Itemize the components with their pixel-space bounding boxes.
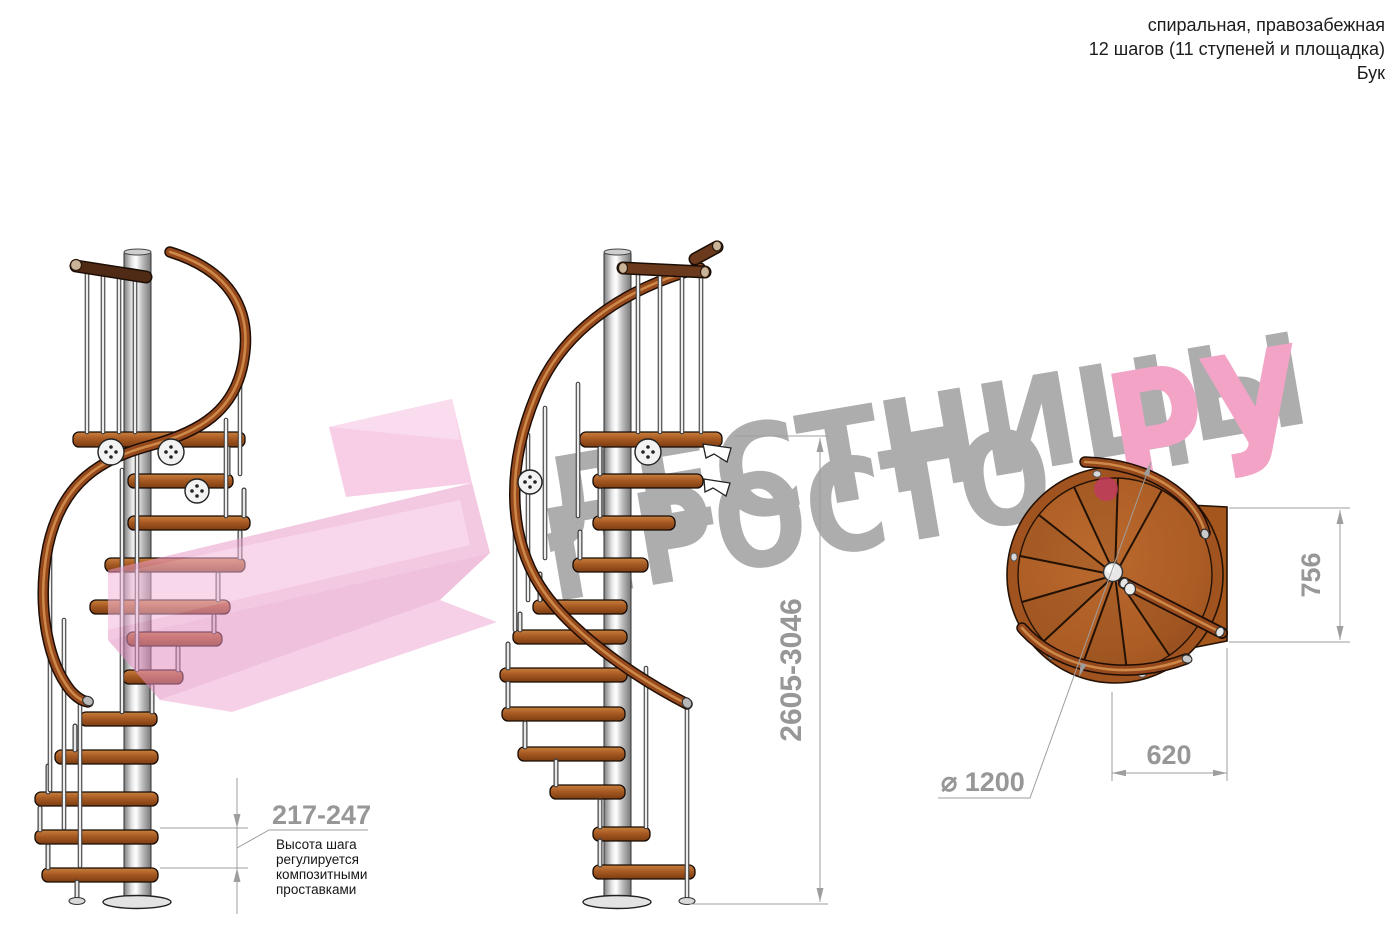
front-pole-base-flange	[583, 896, 651, 909]
left-pole-base-flange	[103, 896, 171, 909]
watermark-dot	[1094, 477, 1118, 501]
header-material: Бук	[1357, 63, 1385, 83]
note-line: Высота шага	[276, 837, 357, 852]
step-height-note: Высота шага регулируется композитными пр…	[276, 837, 367, 897]
left-step	[55, 750, 158, 764]
front-step	[593, 865, 695, 879]
diameter-value: ⌀ 1200	[941, 767, 1025, 797]
plan-newel-cap	[1125, 583, 1136, 595]
front-landing-railing	[619, 241, 722, 432]
front-pole	[604, 251, 631, 903]
front-step	[593, 827, 650, 841]
left-railing-end-cap	[71, 260, 82, 271]
front-step	[518, 747, 625, 761]
front-pole-cap	[604, 249, 631, 255]
left-step	[128, 474, 233, 488]
step-height-value: 217-247	[272, 800, 371, 830]
front-step	[593, 474, 703, 488]
front-step	[593, 516, 675, 530]
front-step	[502, 707, 625, 721]
plan-depth-value: 756	[1296, 552, 1326, 597]
plan-center-pole	[1104, 563, 1123, 582]
header: спиральная, правозабежная 12 шагов (11 с…	[1089, 15, 1385, 83]
left-step	[35, 830, 158, 844]
front-railing-end-cap	[619, 263, 628, 274]
header-steps: 12 шагов (11 ступеней и площадка)	[1089, 39, 1385, 59]
front-step	[513, 630, 627, 644]
left-step	[42, 868, 158, 882]
total-height-value: 2605-3046	[775, 598, 808, 741]
note-line: проставками	[276, 882, 356, 897]
dimension-step-height: 217-247 Высота шага регулируется компози…	[160, 778, 371, 914]
left-step	[128, 516, 250, 530]
left-step	[35, 792, 158, 806]
front-step	[500, 668, 627, 682]
front-step	[550, 785, 625, 799]
front-step	[573, 558, 648, 572]
left-landing-railing	[71, 260, 147, 433]
staircase-technical-drawing: ЛЕСТНИЦЫ ПРОСТО РУ	[0, 0, 1400, 950]
header-type: спиральная, правозабежная	[1148, 15, 1385, 35]
left-pole-cap	[124, 249, 151, 255]
note-line: композитными	[276, 867, 367, 882]
plan-width-value: 620	[1146, 740, 1191, 770]
dimension-plan-depth: 756	[1229, 508, 1350, 642]
note-line: регулируется	[276, 852, 359, 867]
left-step	[80, 712, 157, 726]
